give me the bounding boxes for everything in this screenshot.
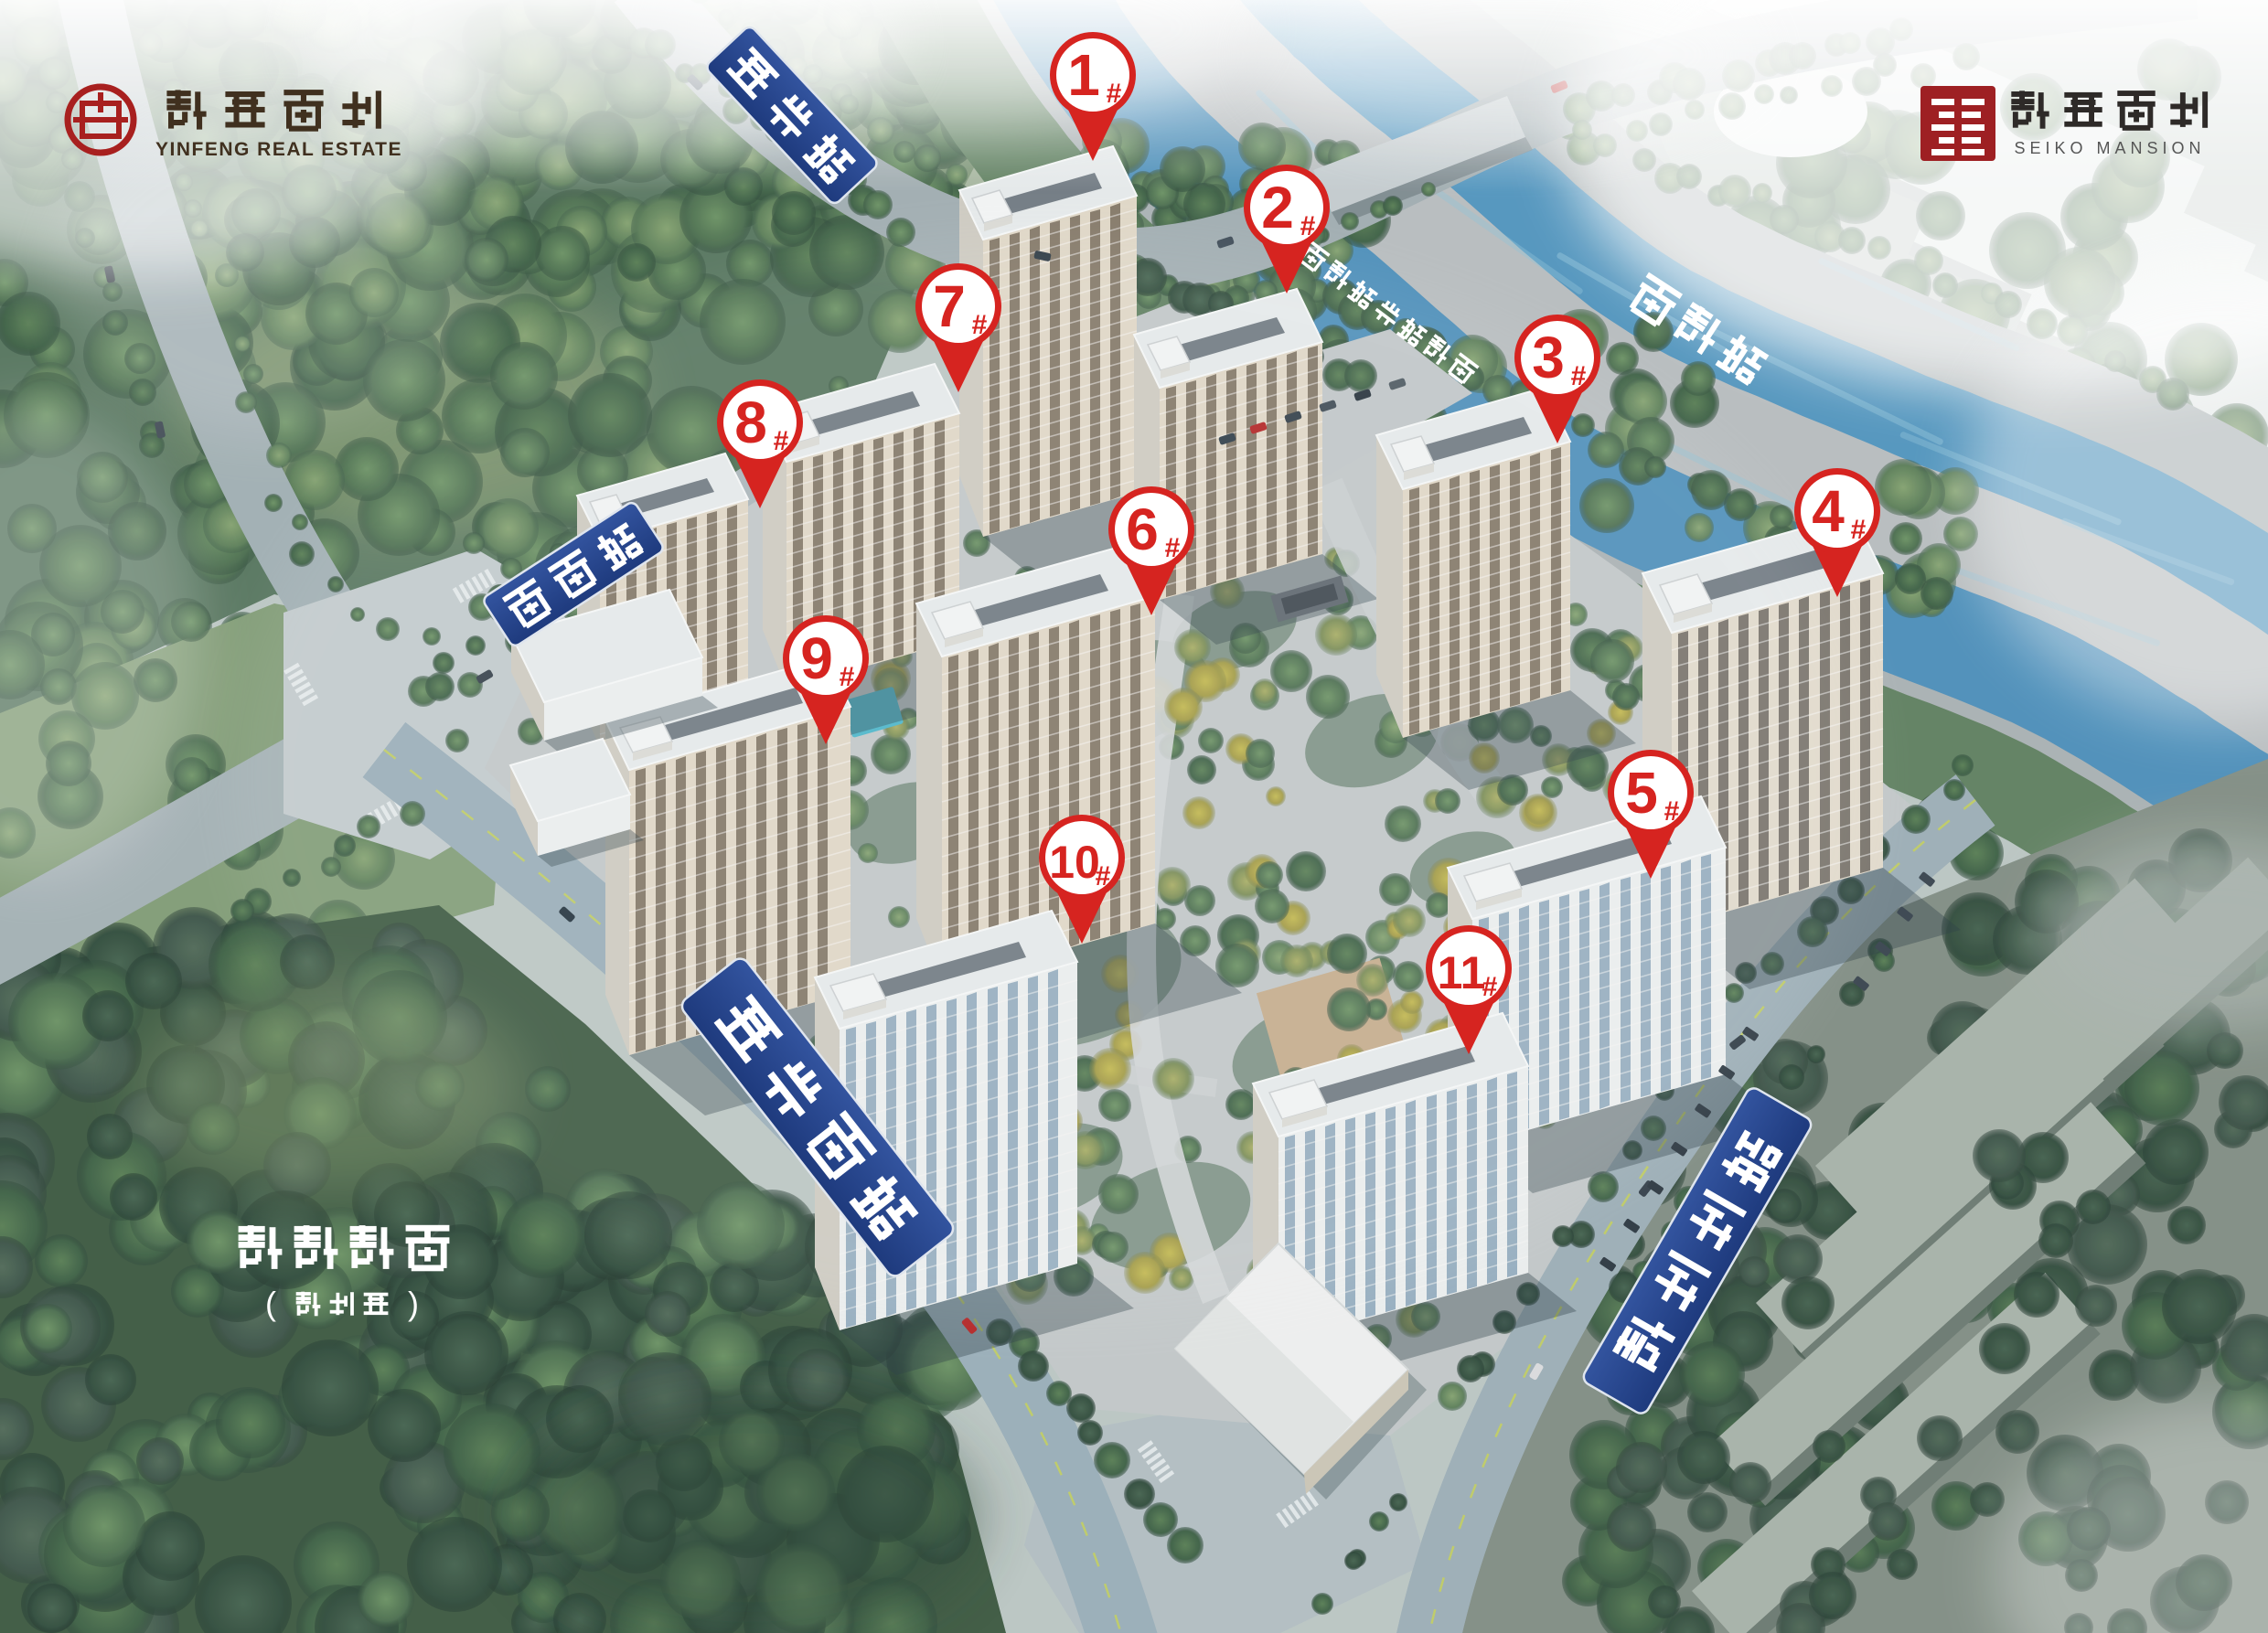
svg-text:#: # xyxy=(1107,79,1122,109)
svg-text:): ) xyxy=(408,1285,419,1322)
svg-text:10: 10 xyxy=(1049,837,1100,888)
svg-text:2: 2 xyxy=(1261,175,1294,240)
svg-text:6: 6 xyxy=(1126,496,1159,562)
svg-text:#: # xyxy=(1571,361,1587,391)
svg-text:8: 8 xyxy=(734,390,767,455)
svg-text:SEIKO MANSION: SEIKO MANSION xyxy=(2014,139,2205,157)
svg-text:#: # xyxy=(774,426,789,456)
svg-text:7: 7 xyxy=(933,273,966,339)
svg-text:#: # xyxy=(972,310,988,340)
svg-text:3: 3 xyxy=(1532,325,1565,390)
svg-text:4: 4 xyxy=(1812,478,1845,544)
svg-text:#: # xyxy=(1165,533,1181,563)
svg-text:1: 1 xyxy=(1067,42,1100,108)
svg-text:#: # xyxy=(1664,796,1680,827)
svg-text:5: 5 xyxy=(1625,760,1658,826)
svg-text:#: # xyxy=(840,662,855,692)
svg-text:11: 11 xyxy=(1438,947,1486,998)
svg-text:#: # xyxy=(1482,972,1498,1002)
svg-text:(: ( xyxy=(265,1285,276,1322)
svg-text:#: # xyxy=(1096,861,1111,891)
svg-text:YINFENG REAL ESTATE: YINFENG REAL ESTATE xyxy=(155,139,402,160)
svg-text:#: # xyxy=(1851,515,1867,545)
svg-text:9: 9 xyxy=(800,625,833,691)
svg-text:#: # xyxy=(1300,211,1316,241)
